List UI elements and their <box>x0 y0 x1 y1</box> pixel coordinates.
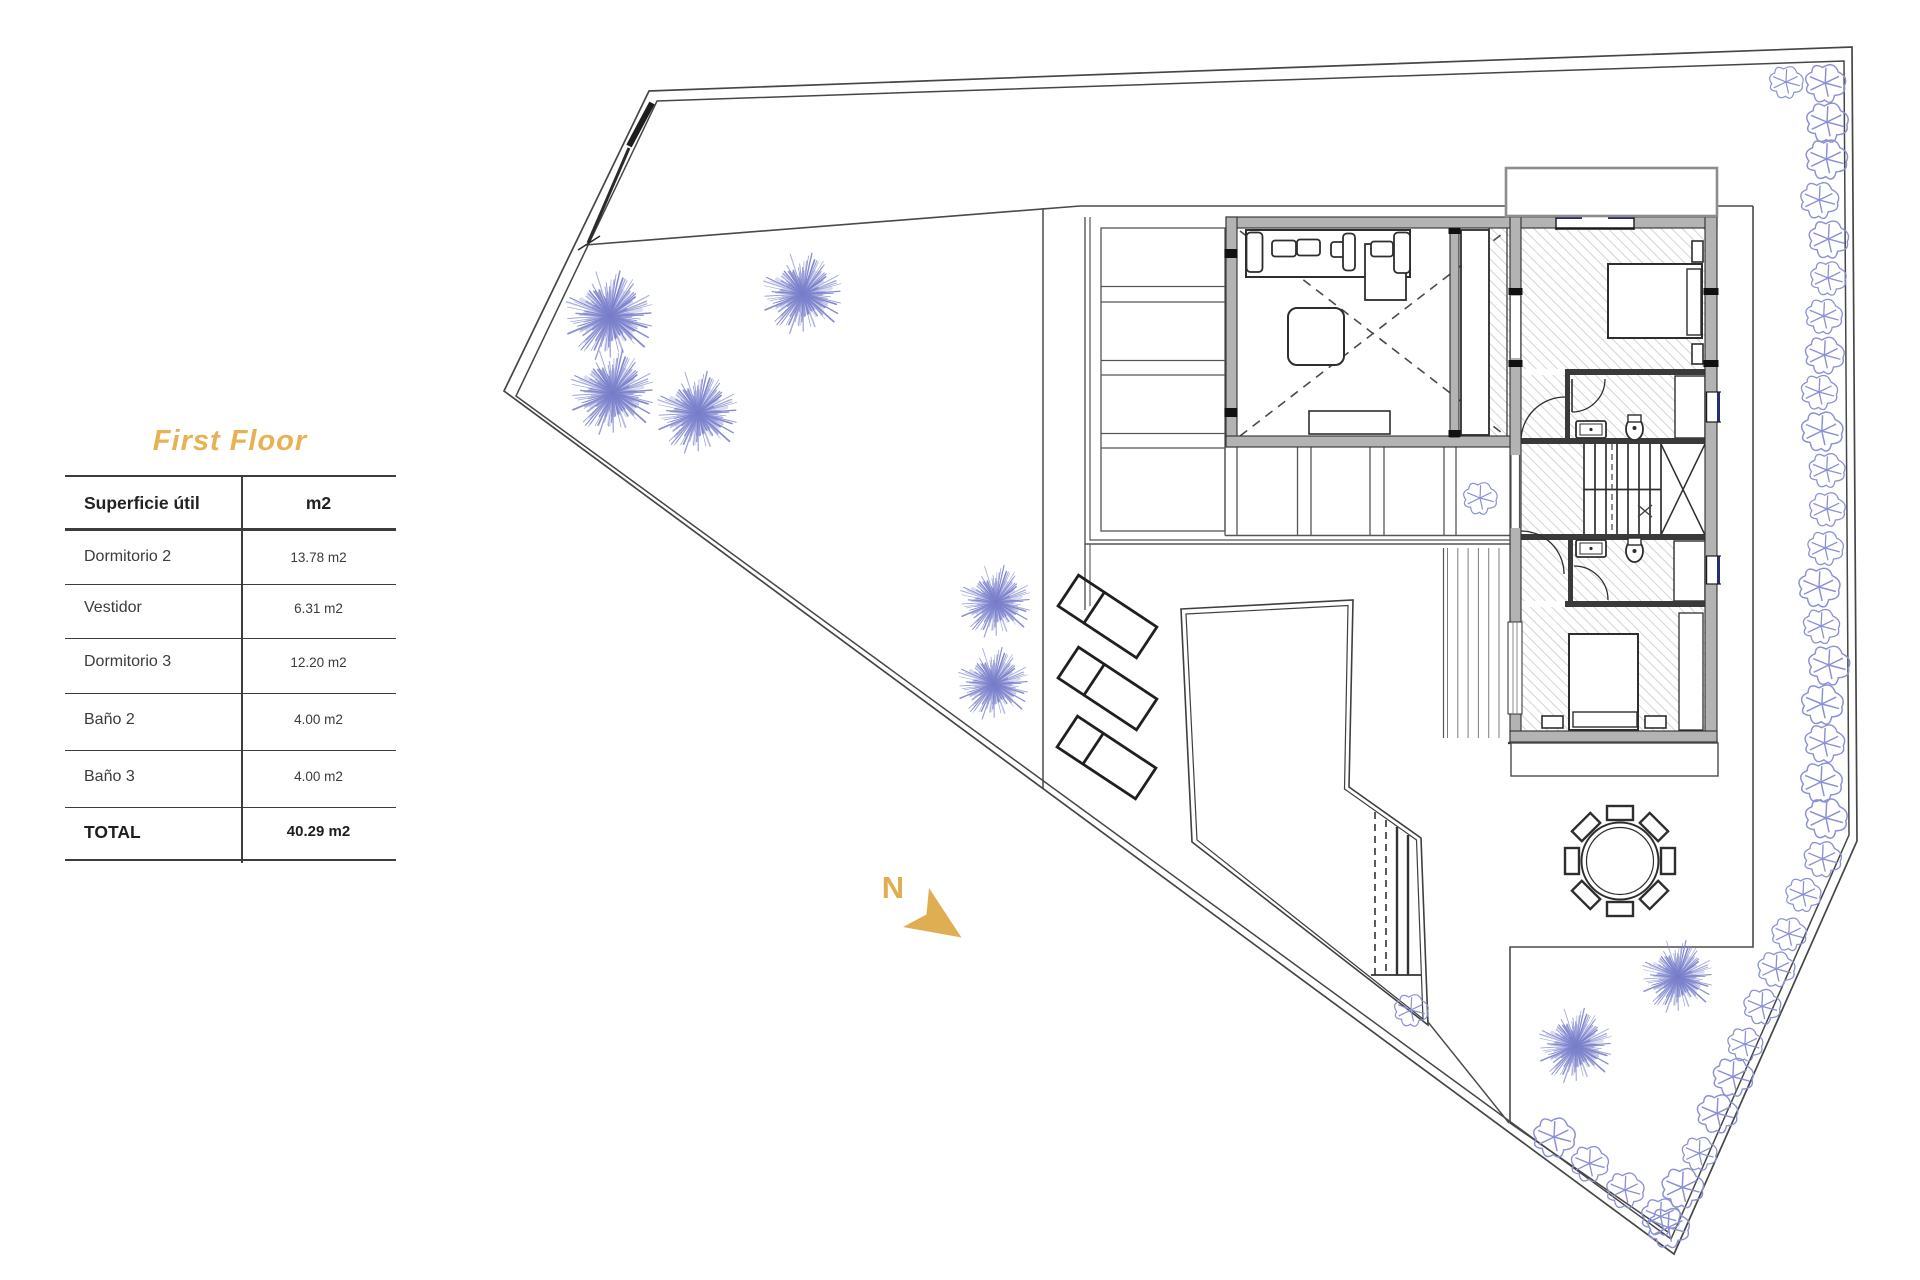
svg-text:N: N <box>882 870 904 905</box>
